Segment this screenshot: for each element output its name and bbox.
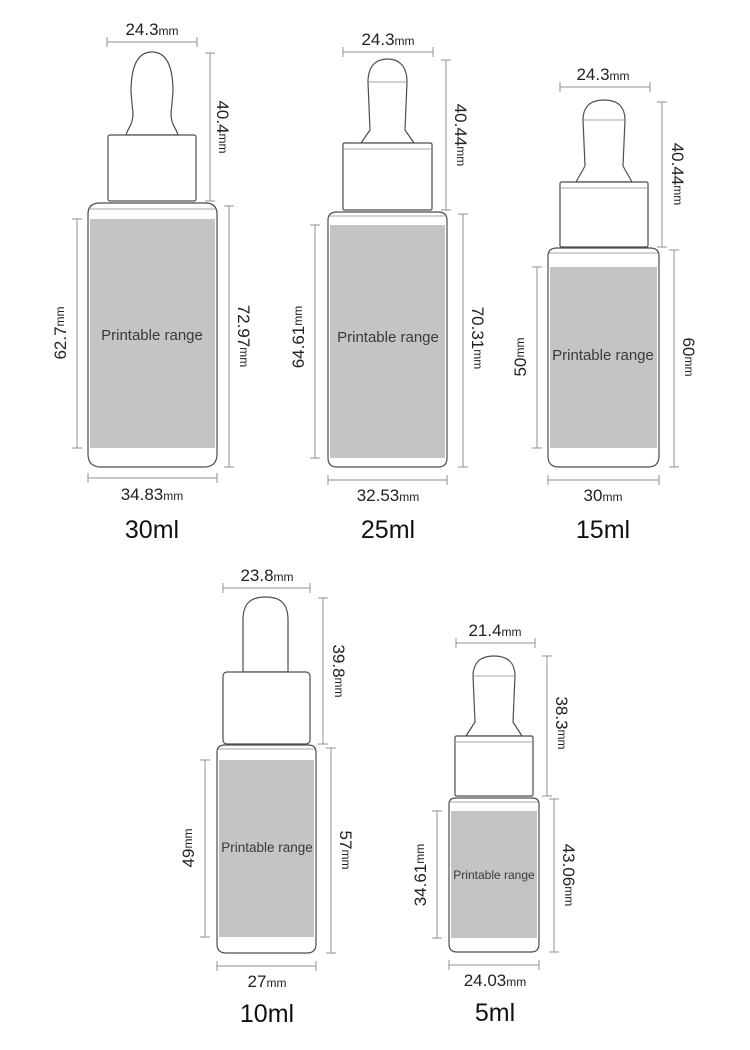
bottom-width-label: 34.83mm bbox=[121, 485, 184, 504]
dropper-height-label: 40.4mm bbox=[214, 100, 233, 153]
dropper-height-dimension-line bbox=[542, 656, 552, 796]
volume-label: 10ml bbox=[240, 1000, 294, 1028]
volume-label: 25ml bbox=[361, 516, 415, 544]
bottom-width-dimension-line bbox=[548, 475, 659, 485]
body-height-dimension-line bbox=[669, 250, 679, 467]
body-height-dimension-line bbox=[326, 748, 336, 953]
bottom-width-label: 32.53mm bbox=[357, 486, 420, 505]
top-width-label: 24.3mm bbox=[576, 65, 629, 84]
top-width-label: 24.3mm bbox=[361, 30, 414, 49]
dropper-height-label: 40.44mm bbox=[669, 143, 688, 206]
dropper-cap bbox=[108, 135, 196, 201]
dropper-bulb bbox=[243, 597, 288, 672]
dropper-height-label: 38.3mm bbox=[553, 696, 572, 749]
bottom-width-label: 27mm bbox=[248, 972, 287, 991]
bottom-width-dimension-line bbox=[328, 475, 447, 485]
bottle-dimension-diagram: Printable range 24.3mm 40.4mm 62.7mm 72.… bbox=[0, 0, 750, 1050]
bottle-5ml: Printable range 21.4mm 38.3mm 34.61mm 43… bbox=[411, 621, 579, 1027]
top-width-label: 21.4mm bbox=[468, 621, 521, 640]
printable-range-label: Printable range bbox=[337, 329, 439, 346]
printable-height-dimension-line bbox=[532, 267, 542, 448]
bottle-30ml: Printable range 24.3mm 40.4mm 62.7mm 72.… bbox=[51, 20, 254, 544]
diagram-canvas: Printable range 24.3mm 40.4mm 62.7mm 72.… bbox=[0, 0, 750, 1050]
dropper-cap bbox=[455, 736, 533, 796]
body-height-label: 43.06mm bbox=[560, 844, 579, 907]
body-height-label: 60mm bbox=[680, 338, 699, 377]
volume-label: 5ml bbox=[475, 999, 515, 1027]
volume-label: 30ml bbox=[125, 516, 179, 544]
bottom-width-dimension-line bbox=[88, 473, 217, 483]
body-height-dimension-line bbox=[549, 799, 559, 952]
dropper-cap bbox=[223, 672, 310, 744]
top-width-label: 24.3mm bbox=[125, 20, 178, 39]
printable-height-label: 62.7mm bbox=[51, 306, 70, 359]
volume-label: 15ml bbox=[576, 516, 630, 544]
printable-range-label: Printable range bbox=[101, 327, 203, 344]
dropper-height-dimension-line bbox=[318, 598, 328, 744]
bottle-10ml: Printable range 23.8mm 39.8mm 49mm 57mm … bbox=[179, 566, 356, 1028]
bottle-15ml: Printable range 24.3mm 40.44mm 50mm 60mm… bbox=[511, 65, 699, 544]
body-height-label: 72.97mm bbox=[235, 305, 254, 368]
printable-height-dimension-line bbox=[310, 225, 320, 458]
bottom-width-dimension-line bbox=[217, 961, 316, 971]
dropper-bulb bbox=[361, 59, 414, 143]
printable-height-dimension-line bbox=[72, 219, 82, 448]
body-height-label: 70.31mm bbox=[469, 307, 488, 370]
body-height-dimension-line bbox=[458, 214, 468, 467]
dropper-bulb bbox=[466, 656, 522, 736]
printable-range-label: Printable range bbox=[453, 868, 535, 882]
printable-height-label: 64.61mm bbox=[289, 306, 308, 369]
bottle-25ml: Printable range 24.3mm 40.44mm 64.61mm 7… bbox=[289, 30, 488, 544]
top-width-label: 23.8mm bbox=[240, 566, 293, 585]
dropper-height-label: 39.8mm bbox=[330, 644, 349, 697]
printable-range-label: Printable range bbox=[552, 347, 654, 364]
bottom-width-label: 24.03mm bbox=[464, 971, 527, 990]
dropper-height-dimension-line bbox=[205, 53, 215, 201]
printable-height-label: 50mm bbox=[511, 338, 530, 377]
dropper-height-dimension-line bbox=[657, 102, 667, 247]
body-height-dimension-line bbox=[224, 206, 234, 467]
printable-height-dimension-line bbox=[200, 760, 210, 937]
dropper-cap bbox=[560, 182, 648, 247]
printable-height-label: 34.61mm bbox=[411, 844, 430, 907]
bottom-width-dimension-line bbox=[449, 960, 539, 970]
dropper-bulb bbox=[126, 52, 178, 135]
body-height-label: 57mm bbox=[337, 831, 356, 870]
dropper-height-label: 40.44mm bbox=[452, 104, 471, 167]
printable-range-label: Printable range bbox=[221, 840, 313, 855]
printable-height-label: 49mm bbox=[179, 829, 198, 868]
bottom-width-label: 30mm bbox=[584, 486, 623, 505]
dropper-height-dimension-line bbox=[441, 60, 451, 210]
dropper-bulb bbox=[576, 100, 632, 182]
printable-height-dimension-line bbox=[432, 811, 442, 938]
dropper-cap bbox=[343, 143, 432, 210]
